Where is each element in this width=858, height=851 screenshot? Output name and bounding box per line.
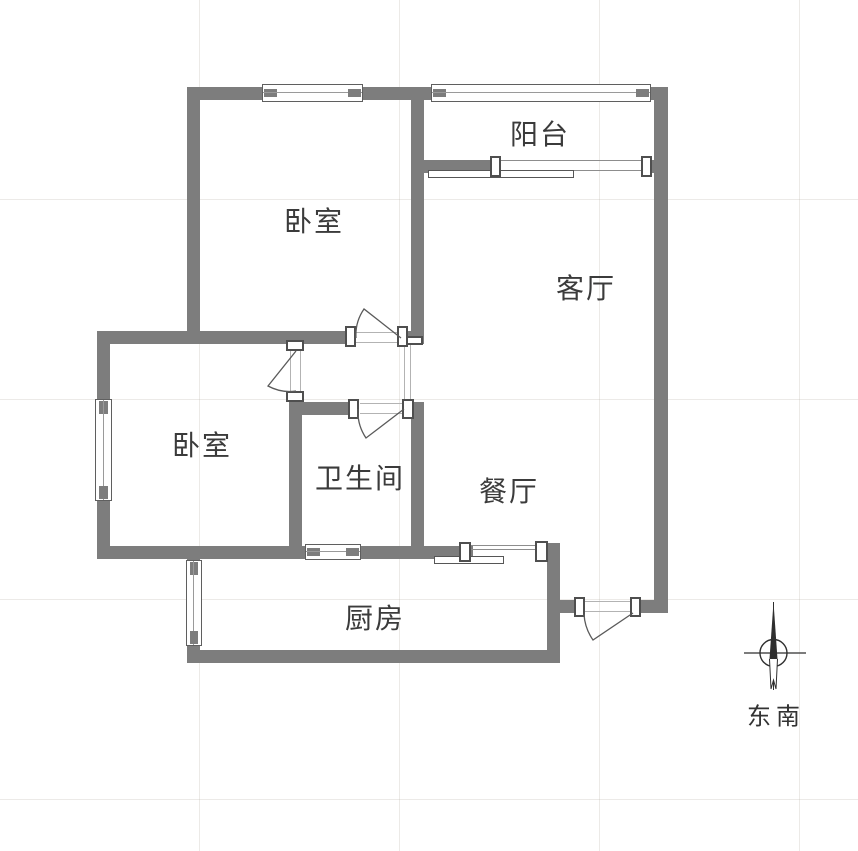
room-label-bedroom-left: 卧室	[172, 424, 232, 464]
wall-kitchen-bottom	[187, 650, 560, 663]
balcony-slider-panel	[428, 170, 574, 178]
room-label-kitchen: 厨房	[345, 597, 405, 637]
wall-central-upper	[411, 87, 424, 344]
balcony-slider-jamb-right	[641, 156, 652, 177]
window-balcony	[431, 84, 651, 102]
balcony-slider-jamb-left	[490, 156, 501, 177]
compass-needle	[770, 602, 778, 659]
room-label-bedroom-top: 卧室	[284, 200, 344, 240]
compass-direction-label: 东南	[747, 697, 805, 732]
compass-circle	[760, 640, 787, 667]
entry-door-swing	[584, 613, 633, 640]
window-bedroom-left	[95, 399, 112, 501]
window-cap	[190, 631, 198, 644]
bathroom-door-jamb-right	[402, 399, 414, 419]
window-bedroom-top	[262, 84, 363, 102]
compass-tail	[770, 659, 778, 689]
window-cap	[346, 548, 359, 556]
bathroom-door-jamb-left	[348, 399, 359, 419]
window-cap	[348, 89, 361, 98]
bedroom-top-door-opening	[356, 332, 398, 343]
wall-east-exterior	[654, 87, 668, 613]
bedroom-top-door-jamb-left	[345, 326, 356, 347]
bathroom-door-opening	[360, 403, 402, 414]
wall-bedroom-left-east-lower	[289, 393, 302, 559]
window-bathroom	[305, 544, 361, 560]
kitchen-slider-jamb-right	[535, 541, 548, 562]
wall-bedroom-top-left	[187, 87, 200, 344]
compass-icon	[744, 602, 806, 690]
room-label-living-room: 客厅	[556, 267, 616, 307]
floor-plan-canvas: 阳台 卧室 客厅 卧室 卫生间 餐厅 厨房 东南	[0, 0, 858, 851]
wall-central-lower	[411, 402, 424, 559]
window-glass-line	[432, 92, 650, 93]
bedroom-left-door-opening	[290, 351, 301, 391]
entry-door-jamb-right	[630, 597, 641, 617]
entry-door-jamb-left	[574, 597, 585, 617]
plan-overlay	[0, 0, 858, 851]
wall-mid-horizontal	[97, 331, 355, 344]
window-cap	[636, 89, 649, 98]
room-label-balcony: 阳台	[510, 113, 570, 153]
window-kitchen	[186, 560, 202, 646]
hallway-passage-jamb-top	[406, 336, 423, 345]
kitchen-slider-track	[471, 545, 536, 550]
bedroom-left-door-jamb-top	[286, 340, 304, 351]
window-glass-line	[103, 400, 104, 500]
entry-door-opening	[585, 601, 630, 612]
hallway-passage-opening	[404, 344, 411, 402]
wall-bottom-band	[97, 546, 473, 559]
room-label-bathroom: 卫生间	[315, 457, 405, 497]
kitchen-slider-jamb-left	[459, 542, 471, 562]
window-cap	[99, 486, 107, 499]
bedroom-left-door-jamb-bottom	[286, 391, 304, 402]
room-label-dining-room: 餐厅	[479, 470, 539, 510]
